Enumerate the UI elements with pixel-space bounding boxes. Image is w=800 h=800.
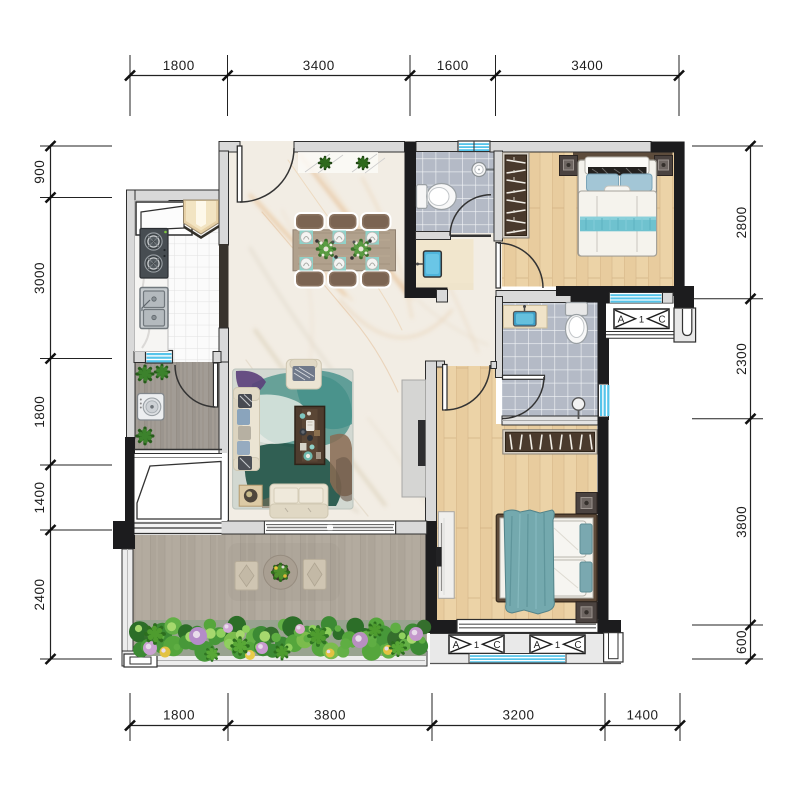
svg-text:A: A	[534, 640, 541, 651]
svg-text:1800: 1800	[163, 58, 195, 73]
svg-text:3200: 3200	[502, 708, 534, 723]
svg-text:A: A	[618, 315, 625, 326]
svg-text:C: C	[658, 315, 665, 326]
svg-text:1: 1	[555, 640, 560, 651]
svg-text:1600: 1600	[437, 58, 469, 73]
svg-text:1400: 1400	[626, 708, 658, 723]
svg-text:1400: 1400	[32, 481, 47, 513]
svg-text:3800: 3800	[314, 708, 346, 723]
svg-text:C: C	[493, 640, 500, 651]
svg-text:3400: 3400	[303, 58, 335, 73]
svg-text:3000: 3000	[32, 262, 47, 294]
svg-text:600: 600	[734, 630, 749, 654]
svg-text:1: 1	[639, 315, 644, 326]
svg-text:1: 1	[474, 640, 479, 651]
svg-text:900: 900	[32, 160, 47, 184]
svg-text:2300: 2300	[734, 343, 749, 375]
svg-text:1800: 1800	[32, 396, 47, 428]
svg-text:2400: 2400	[32, 578, 47, 610]
svg-text:2800: 2800	[734, 206, 749, 238]
svg-text:A: A	[453, 640, 460, 651]
svg-text:3400: 3400	[571, 58, 603, 73]
svg-text:3800: 3800	[734, 506, 749, 538]
svg-text:1800: 1800	[163, 708, 195, 723]
svg-text:C: C	[574, 640, 581, 651]
